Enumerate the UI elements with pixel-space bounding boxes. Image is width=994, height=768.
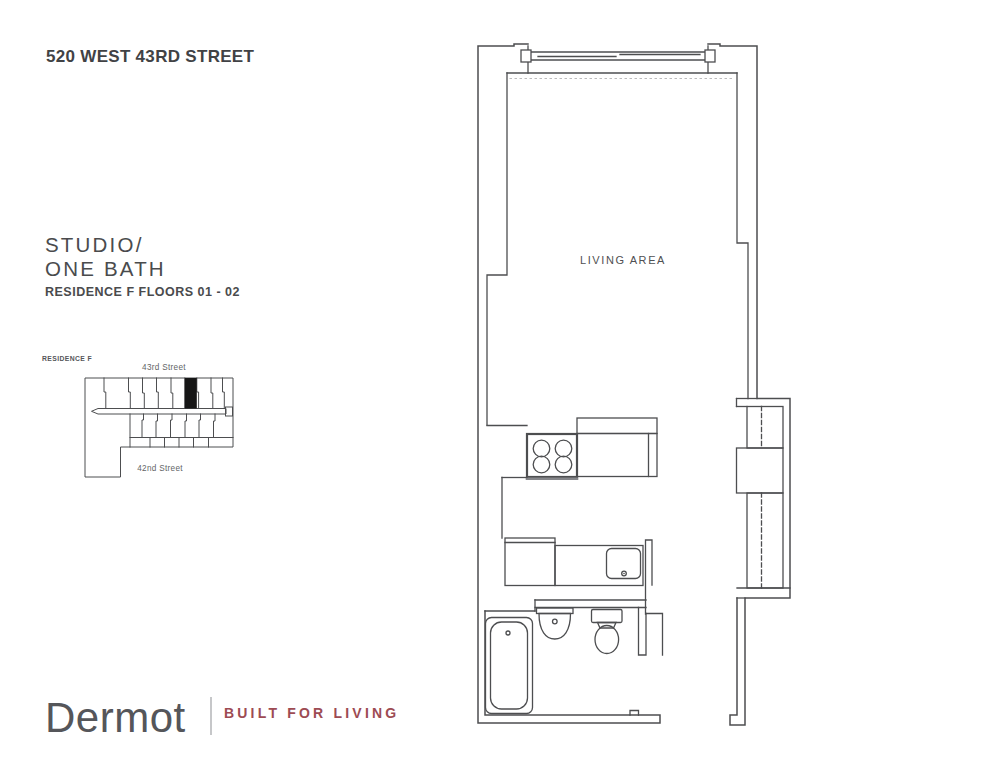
key-plan: RESIDENCE F 43rd Street 42nd Street [42, 355, 233, 477]
entry-wall-jog [646, 614, 663, 656]
unit-dividers-upper [104, 378, 224, 409]
bath-sink-icon [537, 608, 574, 639]
sink-bowl [539, 614, 571, 640]
closet-recess [737, 448, 784, 493]
sink-drain-dot [623, 573, 625, 575]
toilet-icon [592, 610, 623, 654]
closet-upper [747, 407, 783, 449]
kitchen-upper-cabinet [577, 418, 657, 434]
burner [533, 440, 550, 457]
kitchen-appliance [505, 538, 555, 586]
kitchen-lower-counter [555, 546, 643, 586]
burner [555, 440, 572, 457]
toilet-bowl [595, 626, 619, 654]
window-end-cap-left [521, 50, 531, 62]
kitchen [487, 418, 657, 614]
brand-tagline: BUILT FOR LIVING [224, 705, 399, 721]
brand-logo: Dermot [45, 694, 186, 742]
sink-faucet [553, 619, 558, 624]
kitchen-counter-top [577, 434, 657, 477]
wall-right [708, 44, 790, 725]
brand-divider [210, 697, 212, 735]
kitchen-sink-icon [607, 549, 641, 579]
living-area-label: LIVING AREA [580, 254, 666, 266]
bathroom [485, 600, 663, 715]
wall-face-right [737, 73, 748, 399]
unit-dividers-lower [130, 414, 233, 447]
wall-left-bottom [478, 44, 660, 723]
highlighted-unit [185, 378, 197, 409]
street-label-top: 43rd Street [142, 363, 186, 372]
closet-lower [747, 493, 783, 588]
exterior-walls [478, 44, 790, 725]
floor-plan: LIVING AREA [478, 44, 790, 725]
bathtub-icon [486, 618, 533, 714]
floorplan-page: 520 WEST 43RD STREET STUDIO/ ONE BATH RE… [0, 0, 994, 768]
kitchen-entry-wall [646, 540, 653, 614]
window-icon [521, 46, 715, 73]
burner [533, 456, 550, 473]
closet [737, 399, 791, 599]
toilet-tank [592, 610, 623, 623]
key-plan-residence-label: RESIDENCE F [42, 355, 92, 362]
corridor [92, 409, 226, 415]
plan-graphics: LIVING AREA [0, 0, 994, 768]
street-label-bottom: 42nd Street [137, 464, 183, 473]
window-end-cap-right [705, 50, 715, 62]
wall-face-left [487, 73, 507, 425]
burner [555, 456, 572, 473]
stove-icon [527, 434, 577, 479]
tub-drain [506, 631, 510, 635]
corridor-end [226, 407, 233, 416]
interior-wall-faces [487, 73, 748, 425]
sink-back-ledge [537, 608, 574, 614]
